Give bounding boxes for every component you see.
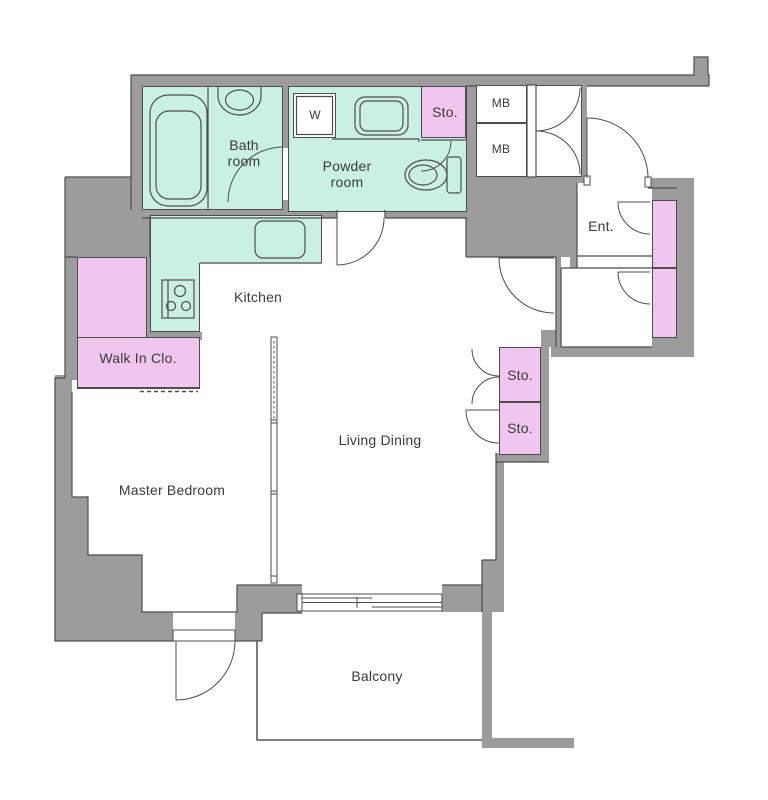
bedroom-door-frame: [173, 630, 235, 641]
label-bathroom: Bath room: [228, 137, 261, 169]
wall-step-2: [88, 555, 142, 641]
shoe-cabinet-1: [652, 200, 677, 268]
door-arc-shoe-cabinet-1: [618, 202, 650, 234]
sliding-partition: [271, 337, 277, 583]
label-kitchen: Kitchen: [234, 289, 282, 305]
wall-right-outer: [677, 188, 694, 357]
label-storage-top: Sto.: [432, 104, 458, 120]
floor-plan: Bath room W Powder room Sto. MB MB Ent. …: [0, 0, 768, 800]
wall-cabinet-top: [652, 183, 677, 200]
label-meter-box-2: MB: [492, 143, 510, 157]
wall-balcony-left-block: [262, 585, 302, 613]
wall-mbcloset-right: [582, 85, 587, 177]
wall-balcony-right: [482, 612, 492, 748]
wall-ld-right: [496, 453, 504, 560]
wall-step-1: [72, 497, 88, 641]
label-powder-room: Powder room: [323, 158, 372, 190]
mb-closet: [527, 85, 582, 177]
label-storage-2: Sto.: [507, 420, 533, 436]
balcony-sliding-door: [297, 594, 442, 611]
wall-corridor-corner: [541, 330, 561, 347]
kitchen-counter-top: [150, 215, 322, 263]
door-arc-storage-1: [472, 349, 499, 404]
wall-sliver-kitchen-left: [142, 218, 150, 257]
label-master-bedroom: Master Bedroom: [119, 482, 225, 498]
door-arc-storage-2: [466, 410, 499, 443]
kitchen-counter-side: [150, 263, 200, 332]
label-storage-1: Sto.: [507, 367, 533, 383]
door-arc-shoe-cabinet-2: [618, 272, 650, 304]
wall-top-nub: [694, 57, 708, 75]
balcony-railing: [257, 641, 482, 740]
wall-sliding-right-block: [442, 585, 504, 612]
wall-entrance-left: [570, 183, 577, 268]
wall-block-under-mb: [476, 183, 570, 257]
label-living-dining: Living Dining: [339, 432, 422, 448]
wall-balcony-bottom: [482, 738, 574, 748]
door-arc-hall-to-living: [499, 258, 554, 313]
door-arc-bedroom: [176, 641, 235, 700]
wall-top: [131, 75, 709, 86]
wall-storage-right: [541, 343, 549, 462]
room-bathroom: [142, 86, 283, 210]
wall-door-right-block: [237, 585, 262, 641]
label-entrance: Ent.: [588, 218, 614, 234]
label-washer: W: [309, 109, 321, 123]
wall-cabinet-bottom: [652, 338, 677, 357]
wall-block-west: [65, 177, 142, 257]
label-walk-in-closet: Walk In Clo.: [99, 350, 176, 366]
wall-left-mid: [65, 257, 77, 380]
shoe-cabinet-2: [652, 268, 677, 338]
label-balcony: Balcony: [351, 668, 402, 684]
walk-in-closet-upper: [77, 257, 147, 337]
label-meter-box-1: MB: [492, 97, 510, 111]
wall-left-lower: [55, 375, 72, 641]
wall-toilet-right: [467, 86, 476, 218]
wall-bedroom-bottom: [142, 612, 173, 641]
door-arc-entry: [587, 118, 648, 178]
door-arc-powder: [337, 218, 384, 265]
